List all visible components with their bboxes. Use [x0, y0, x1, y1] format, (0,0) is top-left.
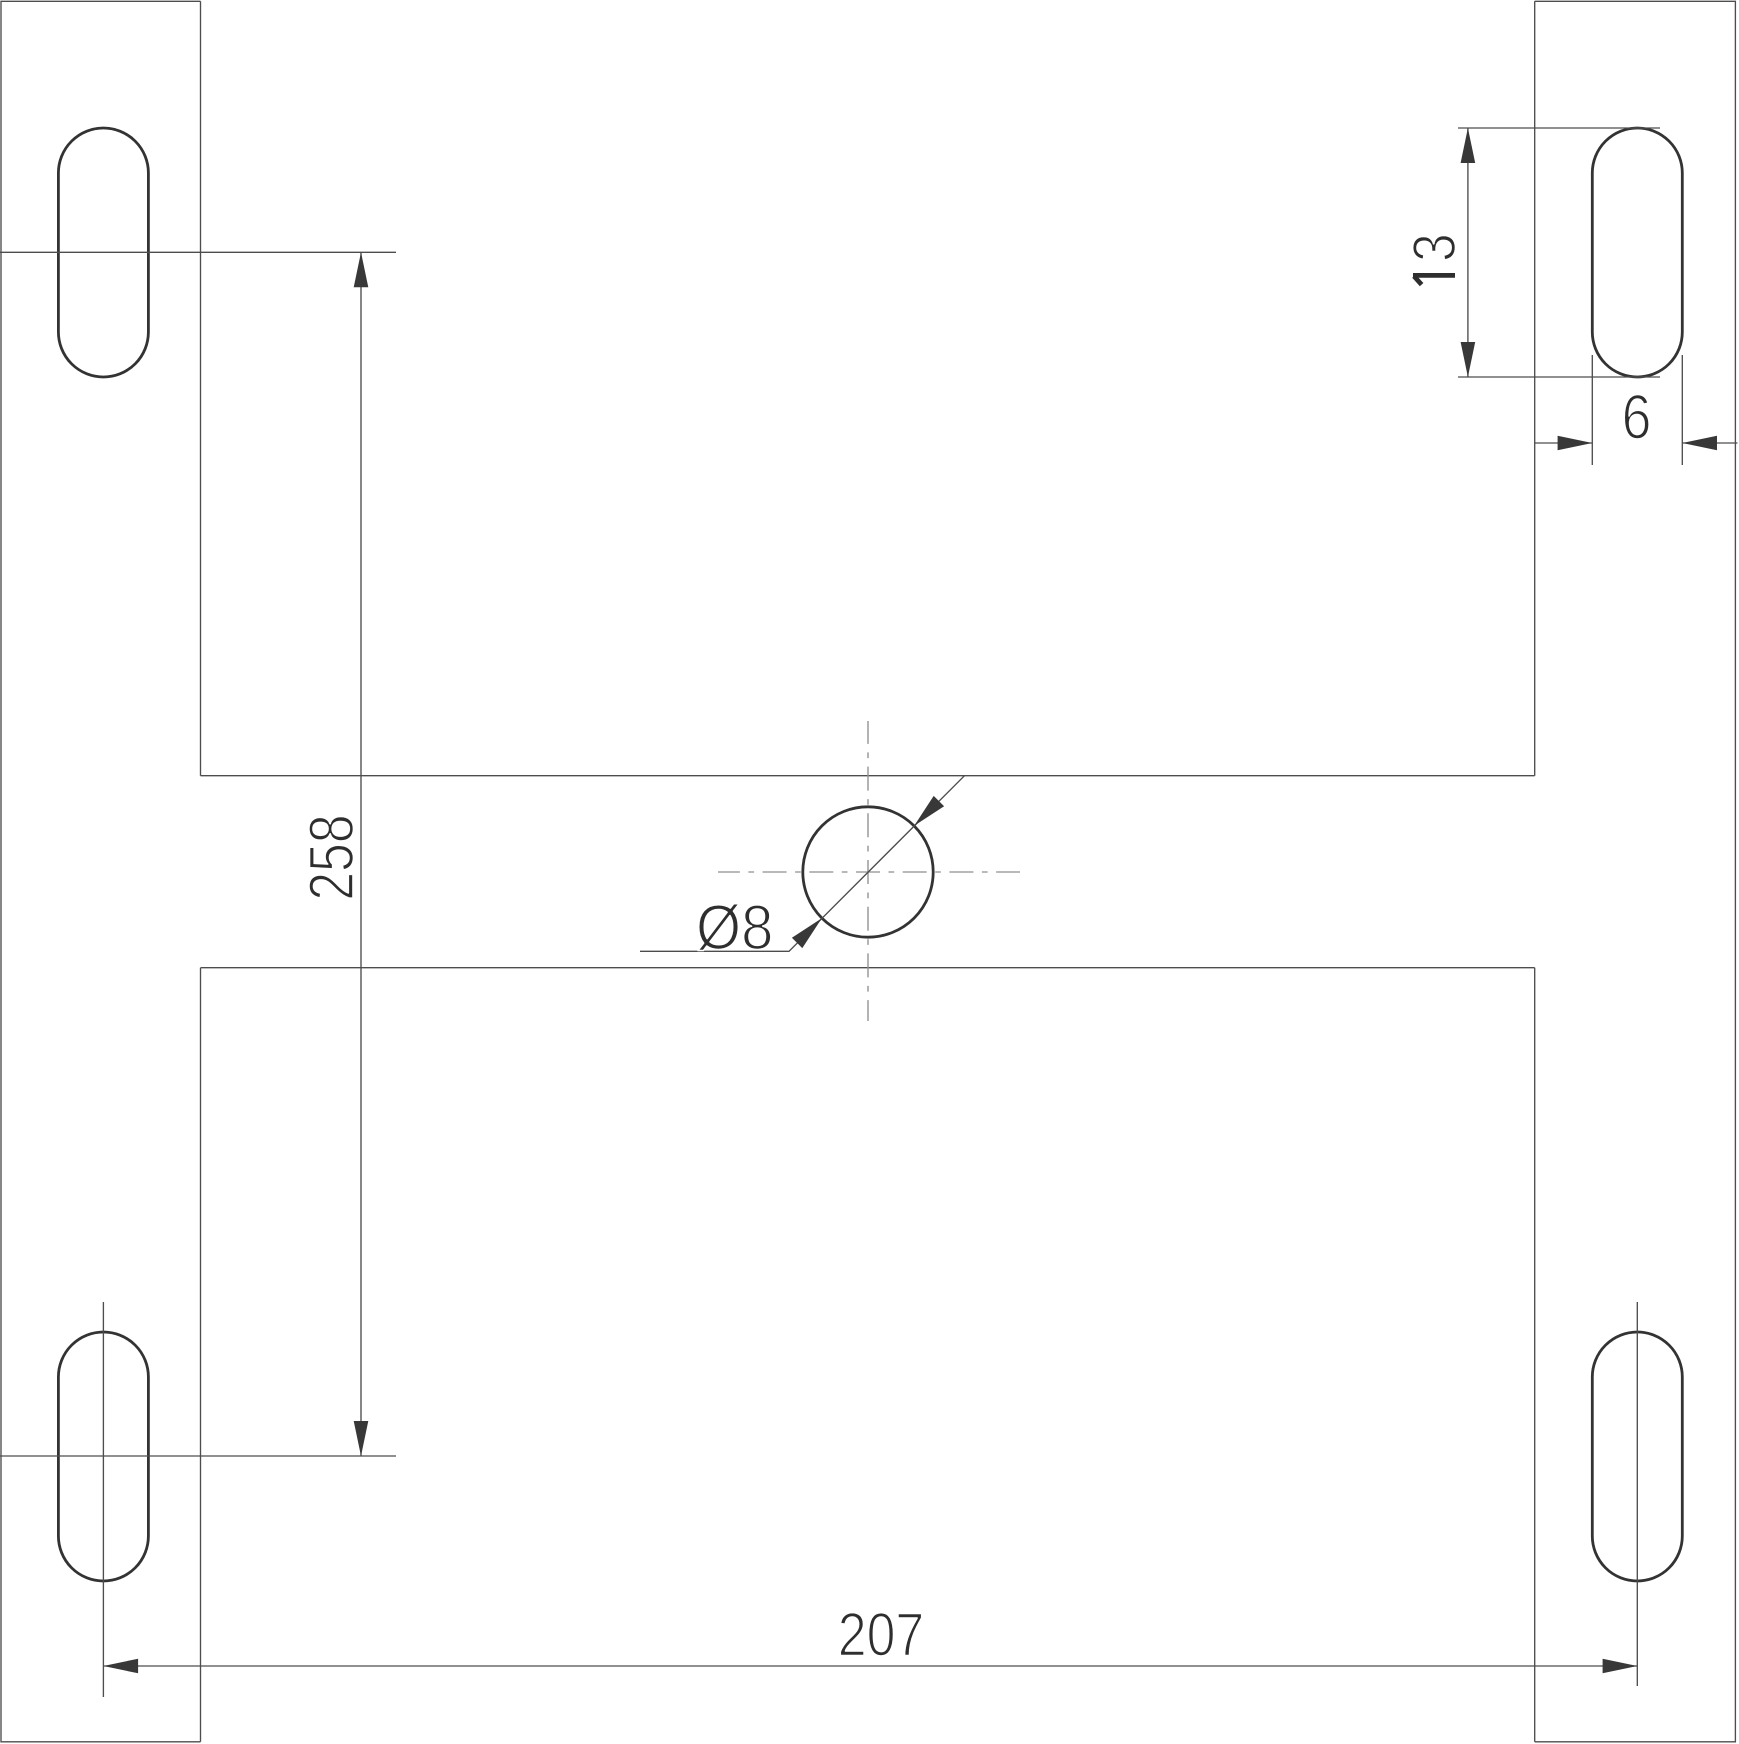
svg-text:6: 6 [1622, 383, 1652, 453]
svg-text:258: 258 [297, 814, 367, 900]
svg-text:Ø8: Ø8 [696, 892, 773, 963]
svg-text:207: 207 [838, 1601, 925, 1669]
svg-text:3: 3 [1401, 233, 1468, 261]
